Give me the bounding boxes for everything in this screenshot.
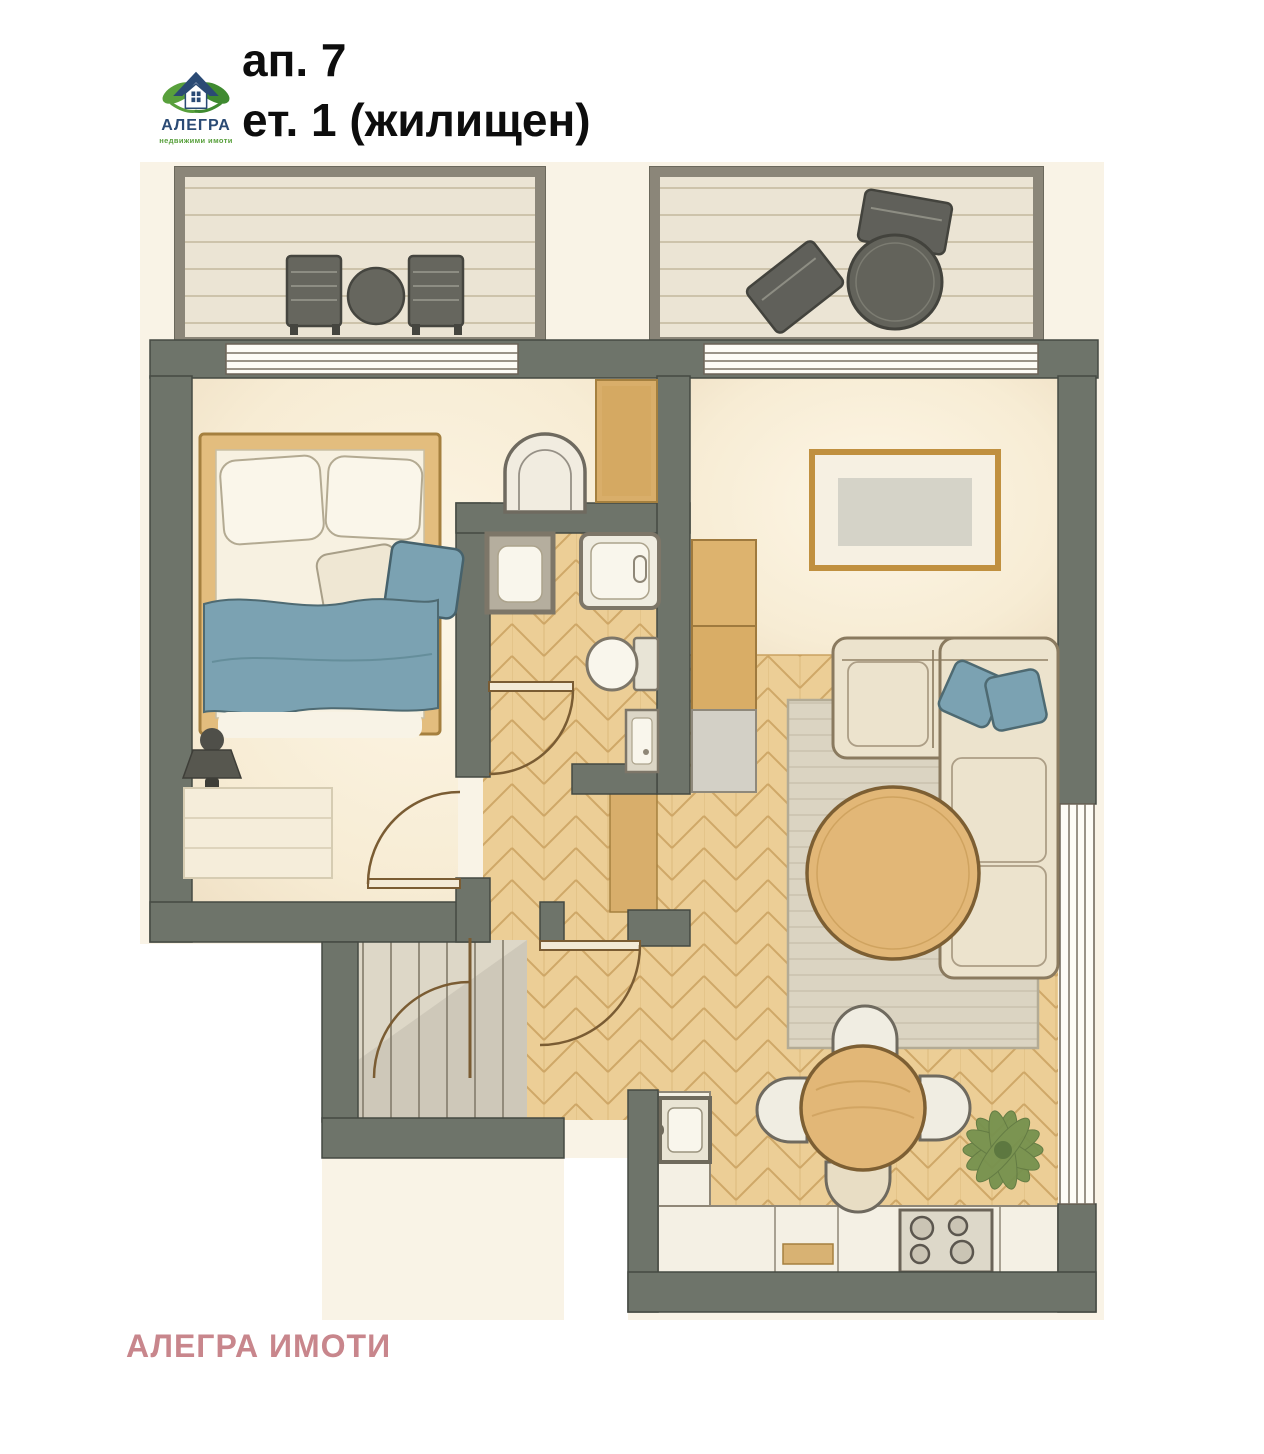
blue-blanket xyxy=(204,599,438,714)
burner xyxy=(911,1245,929,1263)
fridge xyxy=(692,710,756,792)
burner xyxy=(951,1241,973,1263)
pillow xyxy=(219,455,325,546)
cutting-board xyxy=(783,1244,833,1264)
logo-tagline: недвижими имоти xyxy=(138,137,254,145)
balcony-right xyxy=(650,167,1043,347)
tv-screen xyxy=(838,478,972,546)
tall-cabinets xyxy=(692,540,756,710)
round-table xyxy=(848,235,942,329)
logo-name: АЛЕГРА xyxy=(138,118,254,134)
double-bed xyxy=(200,434,465,738)
wall-tv-panel xyxy=(812,452,998,568)
cooktop xyxy=(900,1210,992,1272)
bedroom-window xyxy=(226,344,518,374)
living-room-window xyxy=(704,344,1038,374)
wall-bedroom-right xyxy=(456,878,490,942)
alegra-house-logo-icon xyxy=(158,70,234,116)
wall-bottom xyxy=(628,1272,1096,1312)
round-table xyxy=(348,268,404,324)
wall-south xyxy=(540,902,564,942)
burner xyxy=(949,1217,967,1235)
washing-machine xyxy=(487,534,553,612)
floor-label: ет. 1 (жилищен) xyxy=(242,90,591,150)
plan-cutout xyxy=(0,944,322,1454)
blue-cushion xyxy=(984,668,1048,732)
wall-mid xyxy=(657,376,690,794)
outdoor-chair xyxy=(287,256,341,335)
wall-south xyxy=(150,902,490,942)
built-in-closet xyxy=(610,792,657,912)
plan-cutout xyxy=(564,1158,628,1320)
apartment-label: ап. 7 xyxy=(242,30,591,90)
agency-watermark: АЛЕГРА ИМОТИ xyxy=(126,1328,391,1365)
coffee-table xyxy=(807,787,979,959)
bathroom-cabinet xyxy=(626,710,658,772)
agency-logo: АЛЕГРА недвижими имоти xyxy=(138,70,254,145)
armchair xyxy=(505,434,585,512)
dining-table xyxy=(801,1046,925,1170)
cabinet-handle xyxy=(643,749,649,755)
burner xyxy=(911,1217,933,1239)
plan-title: ап. 7 ет. 1 (жилищен) xyxy=(242,30,591,150)
wall-stair-left xyxy=(322,942,358,1122)
outdoor-chair xyxy=(409,256,463,335)
wardrobe xyxy=(596,380,657,502)
wall-stair-bottom xyxy=(322,1118,564,1158)
balcony-left xyxy=(175,167,545,347)
toilet xyxy=(587,638,658,690)
pillow xyxy=(325,456,423,541)
dresser xyxy=(184,788,332,878)
wall-right xyxy=(1058,376,1096,804)
bed-sheet xyxy=(218,712,422,738)
bathtub xyxy=(581,534,659,608)
kitchen-window xyxy=(1060,804,1094,1204)
floor-plan-page: АЛЕГРА недвижими имоти ап. 7 ет. 1 (жили… xyxy=(0,0,1264,1454)
apartment-floor-plan xyxy=(0,0,1264,1454)
